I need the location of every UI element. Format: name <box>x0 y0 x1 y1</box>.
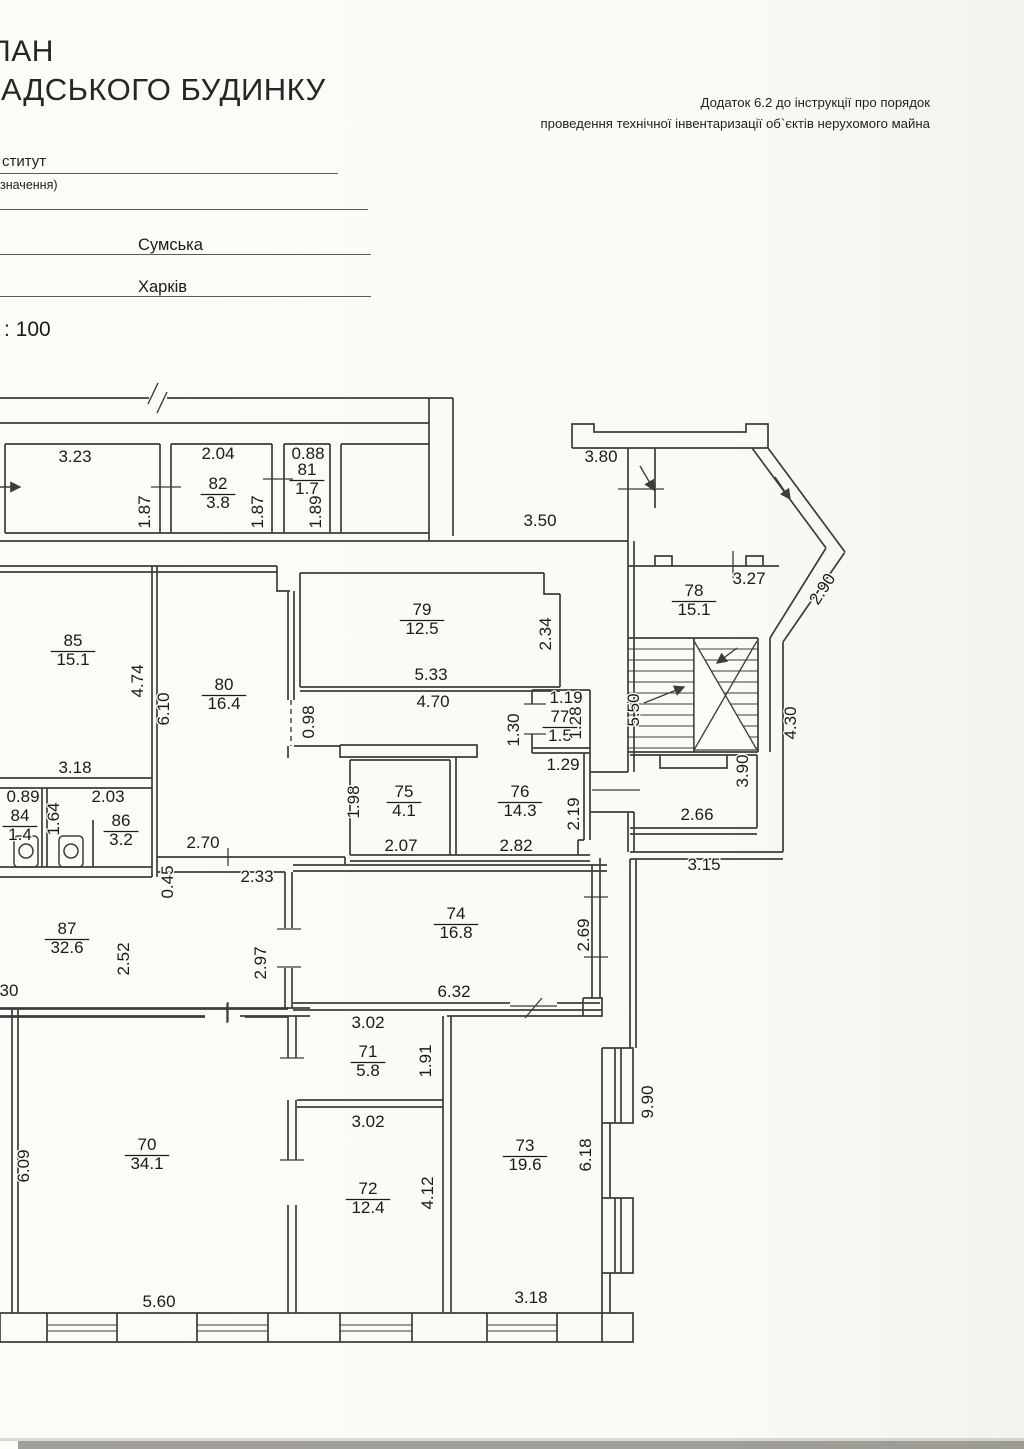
room-area: 16.8 <box>439 923 472 942</box>
room-number: 70 <box>138 1135 157 1154</box>
room-number: 79 <box>413 600 432 619</box>
dim-label-2.07: 2.07 <box>384 836 417 855</box>
room-label-80: 8016.4 <box>202 675 246 713</box>
dim-label-2.97: 2.97 <box>251 946 270 979</box>
room-label-82: 823.8 <box>201 474 236 512</box>
dim-label-9.90: 9.90 <box>638 1085 657 1118</box>
dim-label-1.87: 1.87 <box>135 495 154 528</box>
room-area: 15.1 <box>677 600 710 619</box>
room-label-86: 863.2 <box>104 811 139 849</box>
room-number: 71 <box>359 1042 378 1061</box>
dim-label-3.80: 3.80 <box>584 447 617 466</box>
room-number: 73 <box>516 1136 535 1155</box>
dim-label-0.88: 0.88 <box>291 444 324 463</box>
room-label-74: 7416.8 <box>434 904 478 942</box>
scan-bottom-shadow <box>0 1438 1024 1441</box>
scan-bottom-edge <box>18 1441 1024 1449</box>
dim-label-6.09: 6.09 <box>14 1149 33 1182</box>
dim-label-2.03: 2.03 <box>91 787 124 806</box>
dim-label-6.10: 6.10 <box>154 692 173 725</box>
dim-label-3.02: 3.02 <box>351 1013 384 1032</box>
dim-label-5.50: 5.50 <box>624 693 643 726</box>
dim-label-2.04: 2.04 <box>201 444 234 463</box>
room-number: 75 <box>395 782 414 801</box>
room-area: 15.1 <box>56 650 89 669</box>
dim-label-1.87: 1.87 <box>248 495 267 528</box>
dim-label-1.64: 1.64 <box>44 802 63 835</box>
dim-label-2.82: 2.82 <box>499 836 532 855</box>
window-lines <box>47 1325 557 1331</box>
room-area: 4.1 <box>392 801 416 820</box>
room-area: 32.6 <box>50 938 83 957</box>
room-area: 3.8 <box>206 493 230 512</box>
stair-up-arrow <box>644 687 684 703</box>
dim-label-1.19: 1.19 <box>549 688 582 707</box>
dim-label-4.12: 4.12 <box>418 1176 437 1209</box>
room-area: 19.6 <box>508 1155 541 1174</box>
dim-label-1.30: 1.30 <box>504 713 523 746</box>
room-area: 12.5 <box>405 619 438 638</box>
dim-label-6.18: 6.18 <box>576 1138 595 1171</box>
dim-label-6.32: 6.32 <box>437 982 470 1001</box>
dim-label-2.33: 2.33 <box>240 867 273 886</box>
dimension-ticks <box>151 479 733 1160</box>
dim-label-2.70: 2.70 <box>186 833 219 852</box>
dim-label-0.89: 0.89 <box>6 787 39 806</box>
dim-label-3.27: 3.27 <box>732 569 765 588</box>
room-area: 3.2 <box>109 830 133 849</box>
room-area: 16.4 <box>207 694 240 713</box>
room-area: 14.3 <box>503 801 536 820</box>
dim-label-4.74: 4.74 <box>128 664 147 697</box>
room-label-84: 841.4 <box>3 806 38 844</box>
room-number: 87 <box>58 919 77 938</box>
room-number: 76 <box>511 782 530 801</box>
dim-label-1.28: 1.28 <box>566 706 585 739</box>
dim-label-1.29: 1.29 <box>546 755 579 774</box>
dim-label-3.50: 3.50 <box>523 511 556 530</box>
room-area: 5.8 <box>356 1061 380 1080</box>
room-number: 74 <box>447 904 466 923</box>
dim-label-3.23: 3.23 <box>58 447 91 466</box>
dim-label-1.89: 1.89 <box>306 495 325 528</box>
room-number: 85 <box>64 631 83 650</box>
room-number: 78 <box>685 581 704 600</box>
dim-label-0.98: 0.98 <box>299 705 318 738</box>
dim-label-4.70: 4.70 <box>416 692 449 711</box>
room-label-72: 7212.4 <box>346 1179 390 1217</box>
dim-label-3.18: 3.18 <box>58 758 91 777</box>
dim-label-3.15: 3.15 <box>687 855 720 874</box>
dim-label-3.90: 3.90 <box>733 754 752 787</box>
room-label-73: 7319.6 <box>503 1136 547 1174</box>
stair-down-arrow <box>717 648 737 663</box>
dim-label-1.98: 1.98 <box>344 785 363 818</box>
room-area: 1.4 <box>8 825 32 844</box>
dim-label-2.52: 2.52 <box>114 942 133 975</box>
dim-label-2.34: 2.34 <box>536 617 555 650</box>
room-number: 86 <box>112 811 131 830</box>
side-entry-arrow <box>775 477 790 499</box>
room-label-71: 715.8 <box>351 1042 386 1080</box>
break-symbol <box>148 383 167 413</box>
room-number: 80 <box>215 675 234 694</box>
dim-label-30: 30 <box>0 981 18 1000</box>
dim-label-4.30: 4.30 <box>781 706 800 739</box>
dim-label-0.45: 0.45 <box>158 865 177 898</box>
room-number: 72 <box>359 1179 378 1198</box>
dim-label-5.33: 5.33 <box>414 665 447 684</box>
room-label-79: 7912.5 <box>400 600 444 638</box>
dim-label-1.91: 1.91 <box>416 1044 435 1077</box>
room-label-85: 8515.1 <box>51 631 95 669</box>
floor-plan: 8515.18016.47912.5823.8811.77815.1771.57… <box>0 0 1024 1449</box>
room-label-81: 811.7 <box>290 460 325 498</box>
room-number: 82 <box>209 474 228 493</box>
room-label-87: 8732.6 <box>45 919 89 957</box>
room-area: 12.4 <box>351 1198 384 1217</box>
toilet-icon <box>59 836 83 867</box>
room-area: 1.7 <box>295 479 319 498</box>
room-label-70: 7034.1 <box>125 1135 169 1173</box>
dim-label-2.66: 2.66 <box>680 805 713 824</box>
dim-label-3.18: 3.18 <box>514 1288 547 1307</box>
scanned-floor-plan-page: { "header": { "title_line1": "ЛАН", "tit… <box>0 0 1024 1449</box>
dim-label-3.02: 3.02 <box>351 1112 384 1131</box>
dim-label-2.19: 2.19 <box>564 797 583 830</box>
dim-label-5.60: 5.60 <box>142 1292 175 1311</box>
room-label-75: 754.1 <box>387 782 422 820</box>
room-label-78: 7815.1 <box>672 581 716 619</box>
room-area: 34.1 <box>130 1154 163 1173</box>
room-number: 84 <box>11 806 30 825</box>
room-label-76: 7614.3 <box>498 782 542 820</box>
entry-door-arrow <box>640 466 654 490</box>
dim-label-2.69: 2.69 <box>574 918 593 951</box>
